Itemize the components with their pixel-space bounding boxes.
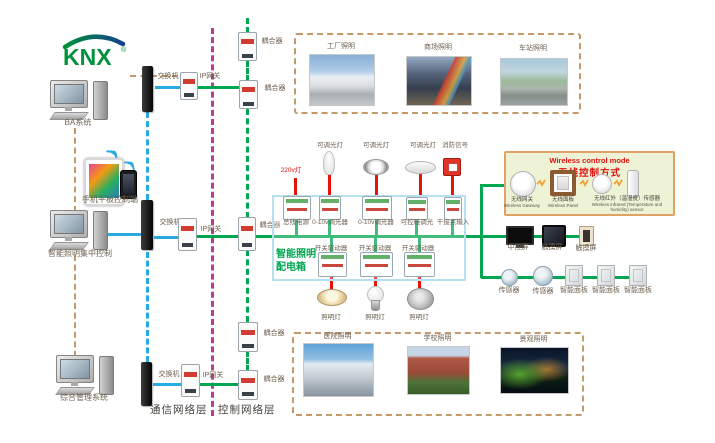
dimmer-module <box>362 196 392 220</box>
mains-input-label: 220v灯 <box>271 167 311 174</box>
network-switch <box>141 362 152 406</box>
ceiling-lamp-icon <box>317 289 347 306</box>
scene-label: 车站照明 <box>500 45 566 53</box>
monitor-stand <box>65 237 72 241</box>
smart-panel-icon <box>597 265 615 286</box>
radio-signal-icon <box>536 178 546 188</box>
scene-label: 学校照明 <box>407 335 468 343</box>
knx-logo: KNX ® <box>58 32 130 70</box>
sensor-icon <box>533 266 553 286</box>
wireless-panel-icon <box>550 170 576 196</box>
wireless-panel-label: 无线面板 Wireless Panel <box>545 197 581 208</box>
coupler-device <box>238 32 257 61</box>
ip-gateway-label: IP网关 <box>197 372 229 380</box>
en: Wireless infrared (Temperature and humid… <box>586 202 668 212</box>
knx-bus-dashed-line <box>246 351 249 371</box>
photo-school-lighting <box>407 346 470 395</box>
dimmable-ceiling-lamp-icon <box>405 161 436 174</box>
switch-actuator-module <box>318 252 347 277</box>
phone-screen <box>123 174 134 194</box>
fire-signal-label: 消防信号 <box>436 142 474 149</box>
load-line <box>328 174 331 197</box>
dimmable-candle-lamp-icon <box>323 151 335 175</box>
temperature-humidity-sensor-icon <box>627 170 639 198</box>
management-system-label: 综合管理系统 <box>42 394 126 403</box>
sensor-row-line <box>515 276 535 279</box>
knx-bus-dashed-line <box>246 61 249 81</box>
switch-to-gateway-line <box>155 86 181 89</box>
wireless-branch-line <box>481 184 505 187</box>
touch-screen-icon <box>579 226 594 246</box>
bulb-lamp-icon <box>367 286 383 312</box>
photo-factory-lighting <box>309 54 375 106</box>
screen <box>54 84 84 104</box>
wireless-sensor-label: 无线红外（温湿度）传感器 Wireless infrared (Temperat… <box>586 196 668 213</box>
touch-screen-label: 触摸屏 <box>570 245 602 253</box>
coupler-label: 耦合器 <box>255 38 289 46</box>
gateway-to-coupler-line <box>193 86 239 89</box>
knx-bus-dashed-line <box>246 250 249 322</box>
central-screen-label: 中控屏 <box>497 244 539 252</box>
coupler-device <box>238 322 258 352</box>
smart-panel-icon <box>565 265 583 286</box>
registered-mark-icon: ® <box>121 46 127 54</box>
module-label: 干接点输入 <box>433 219 473 226</box>
monitor-icon <box>50 80 88 108</box>
photo-mall-lighting <box>406 56 472 106</box>
photo-station-lighting <box>500 58 568 106</box>
knx-lighting-system-diagram: KNX ® <box>0 0 715 443</box>
en: Wireless Gateway <box>503 203 541 208</box>
pc-tower-icon <box>93 211 108 250</box>
load-line <box>375 174 378 197</box>
spot-lamp-icon <box>407 288 434 310</box>
zh: 无线红外（温湿度）传感器 <box>594 196 660 202</box>
screen <box>54 214 84 234</box>
dimmable-downlight-icon <box>363 159 389 175</box>
fire-alarm-icon <box>443 158 461 176</box>
load-line <box>451 175 454 197</box>
photo-landscape-lighting <box>500 347 569 394</box>
wireless-gateway-icon <box>510 171 536 197</box>
central-screen-icon <box>506 226 534 245</box>
radio-signal-icon <box>613 178 623 188</box>
knx-logo-arc-icon: KNX ® <box>58 32 130 70</box>
switch-actuator-module <box>360 252 393 277</box>
ba-system-computer <box>50 80 108 122</box>
communication-layer-label: 通信网络层 <box>150 402 208 417</box>
sensor-label: 传感器 <box>493 287 525 295</box>
distribution-box-title2: 配电箱 <box>276 262 322 273</box>
tan-link-line <box>74 255 76 357</box>
smart-panel-label: 智能面板 <box>588 287 624 295</box>
gateway-to-coupler-line <box>198 383 238 386</box>
knx-bus-dashed-line <box>246 109 249 218</box>
monitor-icon <box>50 210 88 238</box>
dimmer-module <box>319 196 341 220</box>
central-control-computer <box>50 210 108 252</box>
sensor-label: 传感器 <box>527 288 559 296</box>
dimmable-lamp-label: 可调光灯 <box>357 142 395 149</box>
scene-label: 工厂照明 <box>309 43 373 51</box>
ip-gateway-device <box>178 218 197 251</box>
knx-bus-dashed-line <box>246 18 249 33</box>
ba-system-label: BA系统 <box>40 119 116 128</box>
monitor-icon <box>56 355 94 383</box>
scene-label: 医院照明 <box>303 333 372 341</box>
control-layer-label: 控制网络层 <box>218 402 276 417</box>
zh: 无线面板 <box>552 197 574 203</box>
smart-panel-label: 智能面板 <box>556 287 592 295</box>
ip-gateway-device <box>181 364 200 397</box>
coupler-label: 耦合器 <box>257 330 291 338</box>
pc-tower-icon <box>93 81 108 120</box>
lamp-label: 照明灯 <box>317 314 345 321</box>
scene-label: 景观照明 <box>500 336 567 344</box>
lamp-label: 照明灯 <box>361 314 389 321</box>
monitor-stand <box>71 382 78 386</box>
switch-actuator-module <box>404 252 435 277</box>
knx-logo-text: KNX <box>63 44 112 70</box>
tablet-screen <box>89 164 119 198</box>
radio-signal-icon <box>579 178 589 188</box>
coupler-label: 耦合器 <box>257 376 291 384</box>
smart-panel-icon <box>629 265 647 286</box>
ip-gateway-label: IP网关 <box>195 226 227 234</box>
zh: 无线网关 <box>511 197 533 203</box>
touch-screen-label: 触摸屏 <box>536 244 568 252</box>
sensor-icon <box>501 269 518 286</box>
module-label: 0-10v调光器 <box>308 219 352 226</box>
triac-dimmer-module <box>406 197 428 220</box>
module-label: 0-10v调光器 <box>354 219 398 226</box>
wireless-gateway-label: 无线网关 Wireless Gateway <box>503 197 541 208</box>
wireless-infrared-sensor-icon <box>592 174 612 194</box>
screen <box>60 359 90 379</box>
lamp-label: 照明灯 <box>405 314 433 321</box>
comm-backbone-line <box>146 112 149 200</box>
wifi-icon <box>124 156 140 170</box>
switch-to-gateway-line <box>154 236 179 239</box>
smart-panel-label: 智能面板 <box>620 287 656 295</box>
wireless-title-en: Wireless control mode <box>506 156 673 165</box>
sensor-row-line <box>481 276 502 279</box>
central-control-label: 智能照明集中控制 <box>30 250 130 259</box>
monitor-stand <box>65 107 72 111</box>
right-branch-line <box>480 184 483 278</box>
bus-power-module <box>283 196 311 220</box>
switch-to-gateway-line <box>153 383 181 386</box>
module-label: 可控硅调光 <box>397 219 437 226</box>
network-switch <box>141 200 153 250</box>
photo-hospital-lighting <box>303 343 374 397</box>
load-line <box>419 173 422 197</box>
coupler-device <box>238 370 258 400</box>
ip-gateway-label: IP网关 <box>194 73 226 81</box>
dry-contact-module <box>444 197 462 220</box>
en: Wireless Panel <box>545 203 581 208</box>
scene-label: 商场照明 <box>406 44 470 52</box>
comm-backbone-line <box>146 252 149 362</box>
management-system-computer <box>56 355 114 397</box>
dimmable-lamp-label: 可调光灯 <box>311 142 349 149</box>
pc-tower-icon <box>99 356 114 395</box>
coupler-device <box>239 80 258 109</box>
coupler-label: 耦合器 <box>258 85 292 93</box>
